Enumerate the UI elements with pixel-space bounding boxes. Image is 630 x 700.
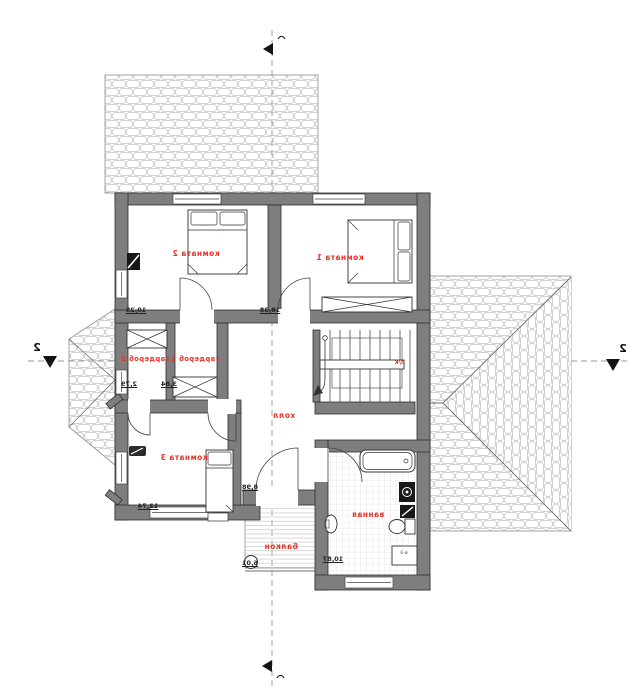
wardrobe-room1 xyxy=(322,297,412,312)
roof-top xyxy=(105,75,318,193)
door-opening-balcony xyxy=(256,489,298,506)
wardrobe-closet1 xyxy=(173,377,217,397)
radiator-room3 xyxy=(129,446,146,456)
axis-tilde-top-icon xyxy=(278,36,285,39)
door-opening-closet2 xyxy=(128,399,150,414)
water-heater xyxy=(400,505,415,518)
sink xyxy=(325,515,337,533)
window-bathroom xyxy=(345,577,393,588)
door-swing-room1 xyxy=(278,278,310,310)
window-top-room1 xyxy=(313,194,365,204)
bed-room2 xyxy=(188,210,247,274)
door-swing-closet2 xyxy=(128,413,150,435)
wall-closet1-right xyxy=(217,323,228,400)
wall-bedroom-divider xyxy=(268,205,281,310)
vent-room2 xyxy=(127,253,140,270)
section-arrow-right-icon xyxy=(606,359,620,371)
axis-arrow-top-icon xyxy=(263,43,273,55)
wall-exterior-top xyxy=(115,193,430,205)
window-left-room3 xyxy=(116,452,127,484)
bathtub xyxy=(360,450,415,472)
axis-arrow-bottom-icon xyxy=(262,660,272,672)
balcony-column xyxy=(245,556,258,569)
floor-plan-page: комната 2 10,25 комната 1 18,38 гардероб… xyxy=(0,0,630,700)
staircase xyxy=(313,330,410,402)
window-left-closet xyxy=(116,370,127,394)
wall-exterior-right xyxy=(417,193,430,590)
bed-room1 xyxy=(348,220,412,283)
window-top-room2 xyxy=(173,194,221,204)
section-arrow-left-icon xyxy=(43,356,57,368)
floor-plan-canvas xyxy=(0,0,630,700)
vent-duct-box xyxy=(392,546,417,565)
door-swing-balcony xyxy=(256,448,298,490)
wardrobe-closet2 xyxy=(127,330,167,348)
door-opening-room2 xyxy=(180,309,214,324)
stair-stringer xyxy=(320,360,404,369)
door-opening-room3 xyxy=(208,399,236,414)
door-swing-room2 xyxy=(180,278,212,310)
roof-right-hipped xyxy=(430,276,571,531)
door-opening-room1 xyxy=(278,309,310,324)
window-left-room2 xyxy=(116,270,127,298)
roof-left-bay xyxy=(69,309,115,465)
wall-stairs-bottom xyxy=(315,402,415,414)
door-opening-bathroom xyxy=(314,448,329,482)
window-bottom-room3 xyxy=(150,507,212,518)
bathtub-drain-icon xyxy=(404,459,408,463)
washing-machine xyxy=(399,482,415,502)
bed-room3 xyxy=(206,450,233,521)
axis-tilde-bottom-icon xyxy=(277,675,284,678)
toilet xyxy=(389,519,415,534)
